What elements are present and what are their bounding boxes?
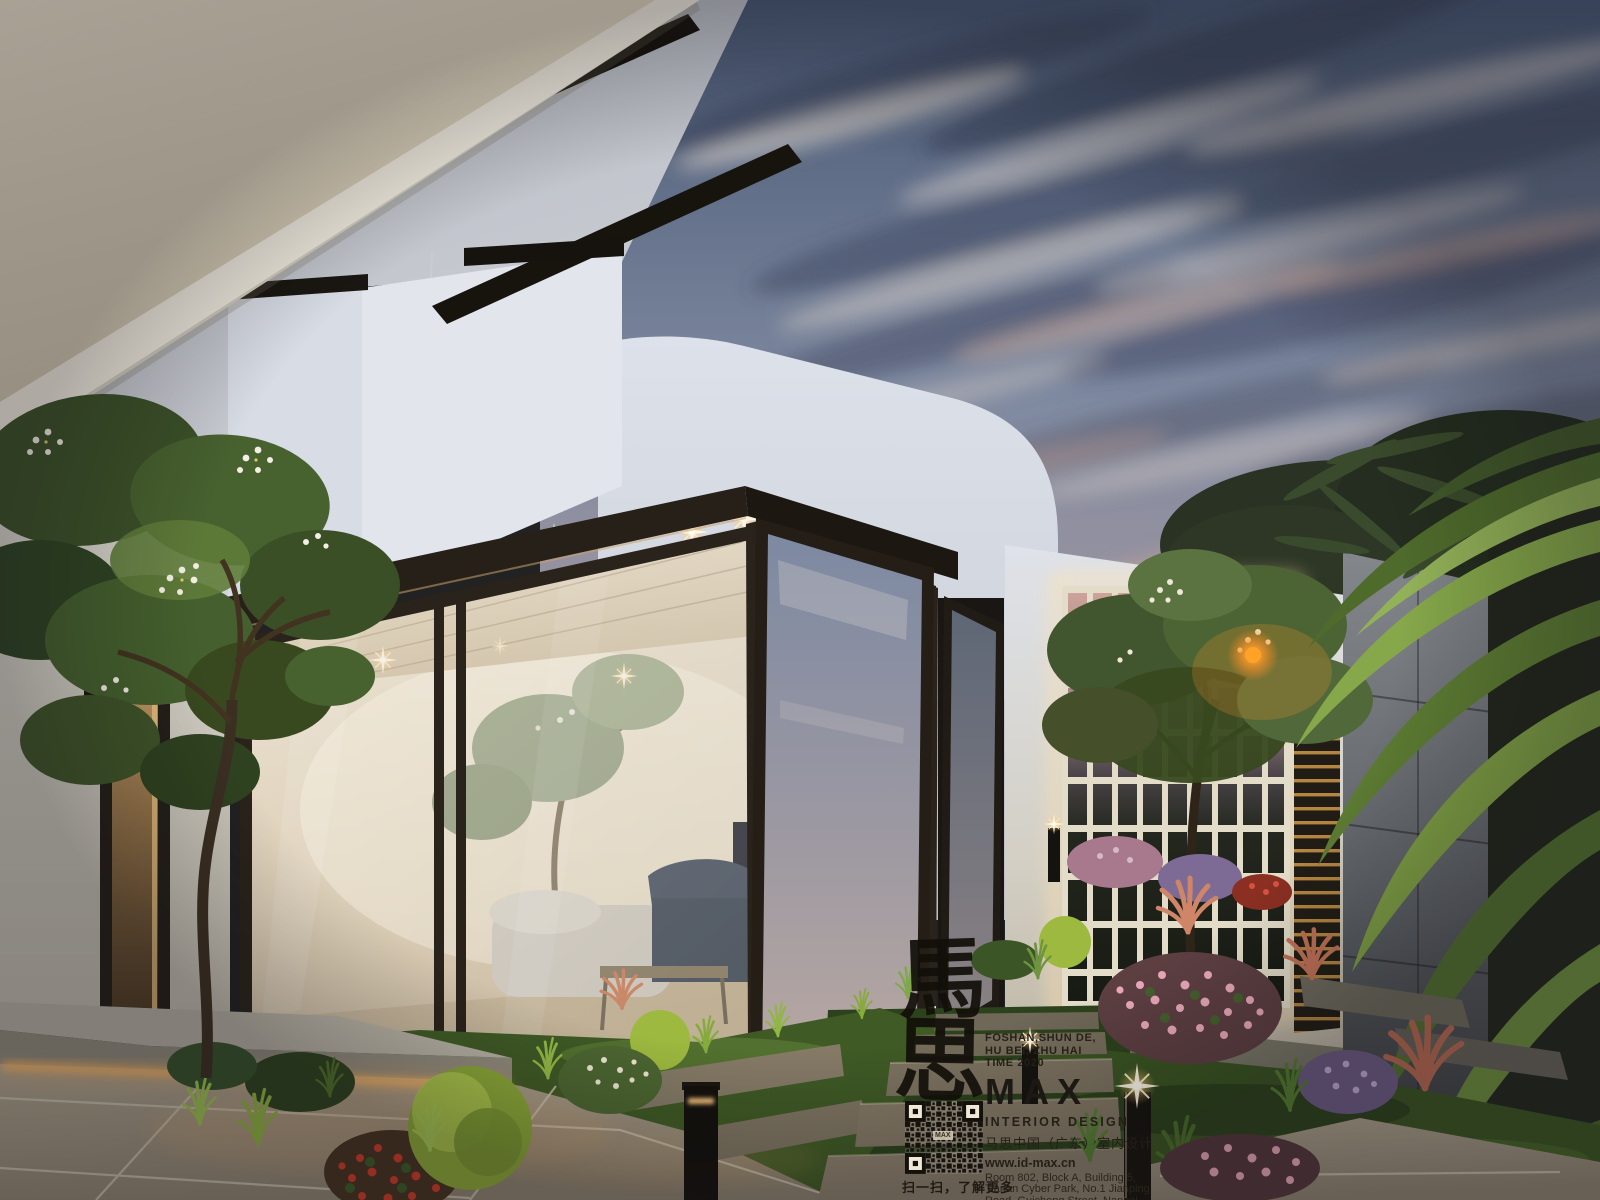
watermark-location-line-2: HU BEI, ZHU HAI xyxy=(985,1045,1215,1058)
address-line: Road, Guicheng Street, Nanhai xyxy=(985,1196,1215,1200)
watermark-time-line: TIME 2020 xyxy=(985,1057,1215,1070)
watermark-address: Room 802, Block A, Building 5, Tianan Cy… xyxy=(985,1173,1215,1200)
watermark-subtitle-en: INTERIOR DESIGN xyxy=(985,1115,1215,1129)
watermark-location-line-1: FOSHAN,SHUN DE, xyxy=(985,1032,1215,1045)
address-line: Tianan Cyber Park, No.1 Jianping xyxy=(985,1184,1215,1196)
watermark-website: www.id-max.cn xyxy=(985,1156,1215,1170)
scene-render xyxy=(0,0,1600,1200)
qr-scan-caption: 扫一扫，了解更多 xyxy=(902,1177,1014,1196)
logo-calligraphy-char-2: 思 xyxy=(893,1014,987,1108)
vignette xyxy=(0,0,1600,1200)
qr-code-image: MAX xyxy=(905,1101,983,1174)
qr-center-label: MAX xyxy=(933,1131,953,1140)
max-logo: MAX xyxy=(985,1075,1215,1109)
watermark-subtitle-cn: 马思中国（广东）室内设计 xyxy=(985,1133,1215,1152)
watermark: 馬 思 FOSHAN,SHUN DE, HU BEI, ZHU HAI TIME… xyxy=(878,933,1218,1200)
render-canvas: 馬 思 FOSHAN,SHUN DE, HU BEI, ZHU HAI TIME… xyxy=(0,0,1600,1200)
watermark-text-column: FOSHAN,SHUN DE, HU BEI, ZHU HAI TIME 202… xyxy=(985,1032,1215,1200)
